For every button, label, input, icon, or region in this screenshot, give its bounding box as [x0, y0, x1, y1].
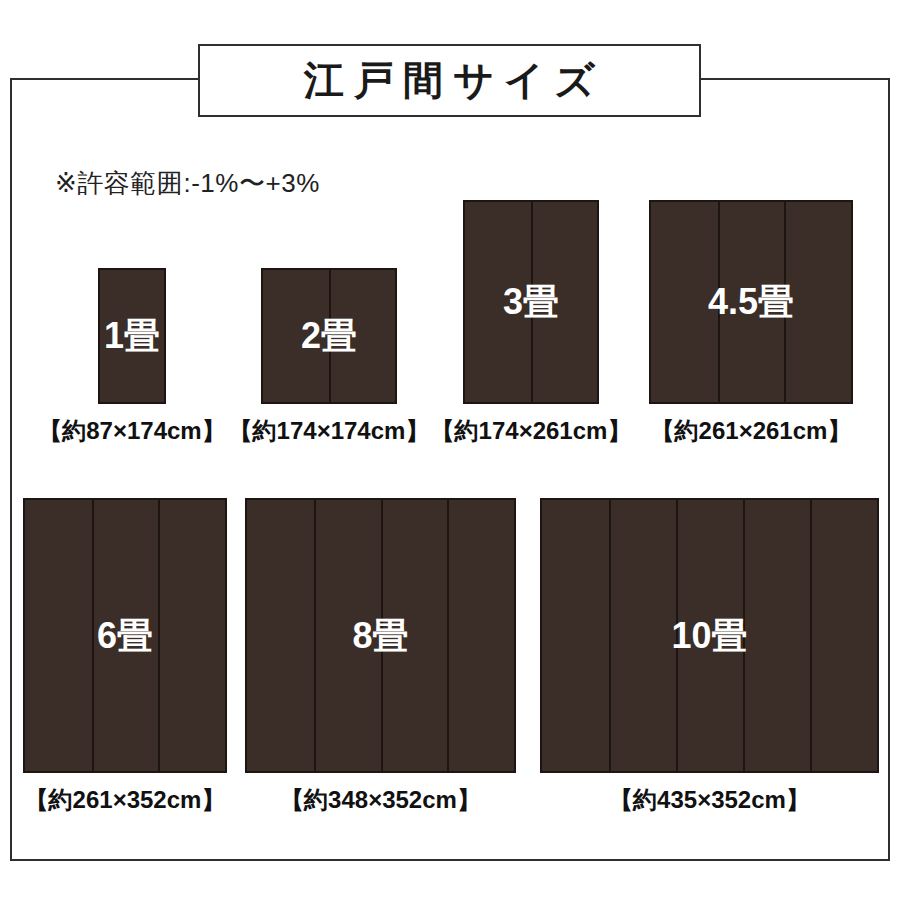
mat-1畳: 1畳: [98, 268, 166, 404]
mat-4.5畳: 4.5畳: [649, 200, 853, 404]
mat-2畳: 2畳: [261, 268, 397, 404]
mat-seam-line: [447, 500, 449, 771]
mat-size-name: 4.5畳: [708, 284, 794, 320]
mat-size-name: 8畳: [352, 618, 408, 654]
mat-seam-line: [92, 500, 94, 771]
mat-seam-line: [609, 500, 611, 771]
page-title: 江戸間サイズ: [294, 53, 604, 108]
mat-size-name: 1畳: [104, 318, 160, 354]
mat-dimensions-label: 【約435×352cm】: [560, 787, 860, 813]
size-chart-page: 江戸間サイズ ※許容範囲:-1%〜+3% 1畳【約87×174cm】2畳【約17…: [0, 0, 900, 900]
mat-size-name: 10畳: [671, 618, 747, 654]
mat-dimensions-label: 【約261×261cm】: [601, 418, 900, 444]
mat-size-name: 6畳: [97, 618, 153, 654]
mats-layer: 1畳【約87×174cm】2畳【約174×174cm】3畳【約174×261cm…: [0, 0, 900, 900]
mat-8畳: 8畳: [245, 498, 516, 773]
mat-dimensions-label: 【約348×352cm】: [231, 787, 531, 813]
mat-seam-line: [158, 500, 160, 771]
mat-size-name: 2畳: [301, 318, 357, 354]
mat-seam-line: [314, 500, 316, 771]
mat-3畳: 3畳: [463, 200, 599, 404]
mat-10畳: 10畳: [540, 498, 879, 773]
mat-size-name: 3畳: [503, 284, 559, 320]
mat-seam-line: [810, 500, 812, 771]
title-box: 江戸間サイズ: [198, 44, 701, 117]
mat-6畳: 6畳: [23, 498, 227, 773]
